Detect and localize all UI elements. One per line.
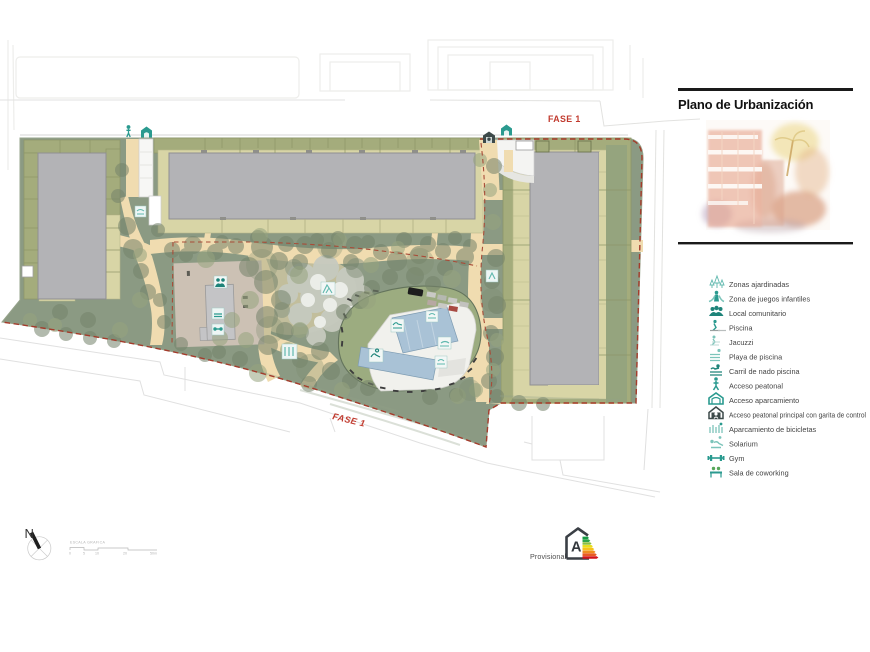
svg-text:Playa de piscina: Playa de piscina bbox=[729, 353, 783, 362]
svg-text:Piscina: Piscina bbox=[729, 324, 753, 333]
svg-text:Sala de coworking: Sala de coworking bbox=[729, 469, 789, 478]
svg-text:Local comunitario: Local comunitario bbox=[729, 309, 786, 318]
svg-text:FASE 1: FASE 1 bbox=[548, 114, 581, 124]
svg-text:Jacuzzi: Jacuzzi bbox=[729, 338, 754, 347]
svg-text:Provisional: Provisional bbox=[530, 552, 567, 561]
svg-text:Acceso peatonal: Acceso peatonal bbox=[729, 382, 783, 391]
svg-text:5: 5 bbox=[83, 552, 85, 556]
svg-text:50m: 50m bbox=[150, 552, 157, 556]
svg-text:Gym: Gym bbox=[729, 454, 744, 463]
svg-text:20: 20 bbox=[123, 552, 127, 556]
svg-text:Solarium: Solarium bbox=[729, 440, 758, 449]
svg-text:N: N bbox=[25, 526, 34, 541]
svg-text:Carril de nado piscina: Carril de nado piscina bbox=[729, 367, 801, 376]
svg-text:Acceso peatonal principal con: Acceso peatonal principal con garita de … bbox=[729, 411, 866, 420]
svg-text:Zona de juegos infantiles: Zona de juegos infantiles bbox=[729, 295, 810, 304]
svg-text:Plano de Urbanización: Plano de Urbanización bbox=[678, 97, 813, 112]
svg-text:Zonas ajardinadas: Zonas ajardinadas bbox=[729, 280, 789, 289]
svg-text:ESCALA GRAFICA: ESCALA GRAFICA bbox=[70, 541, 105, 545]
svg-text:10: 10 bbox=[95, 552, 99, 556]
svg-text:Aparcamiento de bicicletas: Aparcamiento de bicicletas bbox=[729, 425, 817, 434]
svg-text:0: 0 bbox=[69, 552, 71, 556]
svg-text:Acceso aparcamiento: Acceso aparcamiento bbox=[729, 396, 799, 405]
svg-text:A: A bbox=[571, 540, 582, 556]
